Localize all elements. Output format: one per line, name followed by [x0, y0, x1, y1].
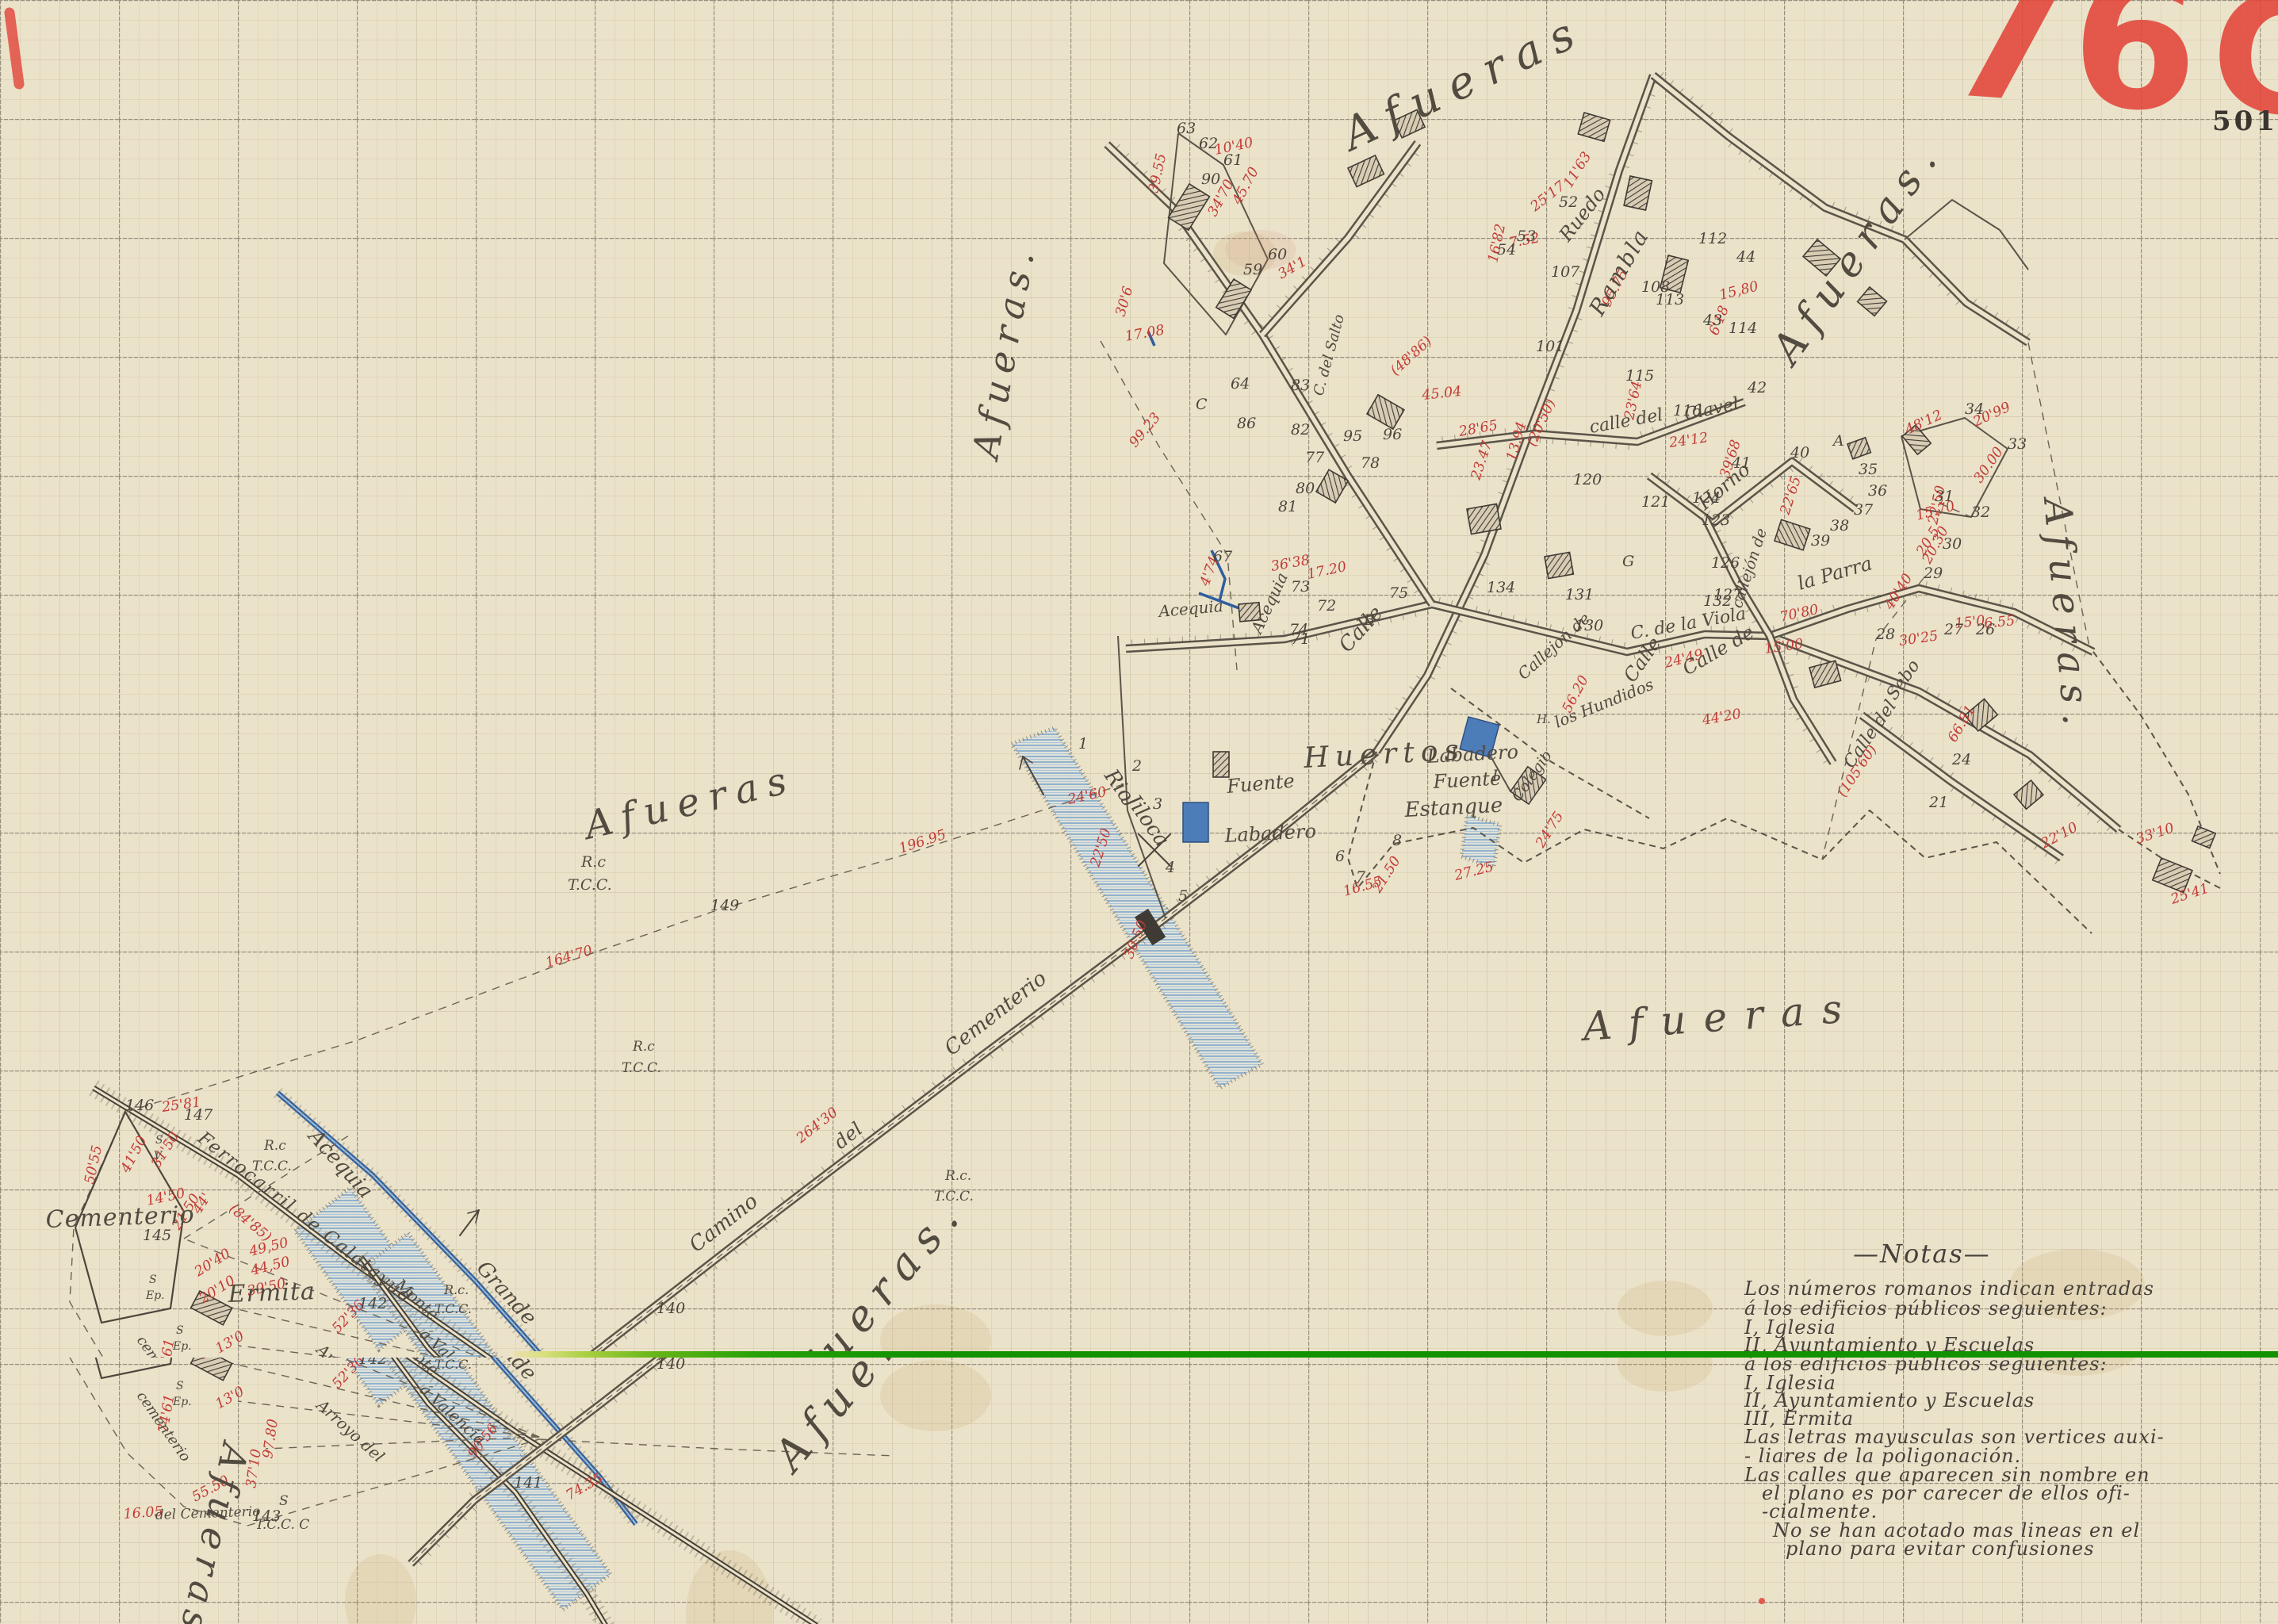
survey-point-number: 123: [1702, 511, 1730, 529]
survey-point-number: 83: [1291, 377, 1310, 394]
survey-point-number: 121: [1641, 493, 1670, 511]
map-label: R.c: [632, 1039, 655, 1055]
survey-point-number: 59: [1243, 261, 1262, 278]
map-label: Ermita: [227, 1277, 316, 1308]
survey-point-number: 113: [1656, 291, 1684, 308]
survey-point-number: 5: [1178, 887, 1188, 905]
survey-point-number: 36: [1868, 482, 1887, 500]
survey-point-number: 86: [1237, 415, 1256, 432]
survey-point-number: 67: [1213, 548, 1233, 565]
survey-point-number: 82: [1291, 421, 1310, 439]
survey-point-number: 80: [1296, 480, 1315, 497]
map-label: T.C.C.: [435, 1301, 472, 1316]
survey-point-number: 78: [1361, 454, 1380, 472]
survey-point-number: 7: [1356, 868, 1366, 886]
survey-point-number: 44: [1736, 248, 1755, 266]
map-label: R.c.: [944, 1168, 971, 1184]
survey-point-number: 40: [1790, 444, 1809, 462]
survey-point-number: 63: [1177, 120, 1196, 137]
survey-point-number: 131: [1565, 586, 1594, 603]
survey-point-number: 31: [1935, 488, 1954, 505]
notes-title: —Notas—: [1853, 1239, 1991, 1269]
survey-point-number: 107: [1551, 263, 1580, 281]
map-label: T.C.C.: [568, 876, 612, 894]
survey-point-number: 114: [1729, 320, 1757, 337]
survey-point-number: 140: [657, 1300, 685, 1317]
map-label: Ep.: [145, 1289, 165, 1302]
survey-point-number: 101: [1536, 338, 1564, 355]
survey-point-number: 74: [1289, 621, 1308, 638]
survey-point-number: 64: [1231, 375, 1250, 393]
map-label: T.C.C.: [934, 1189, 974, 1205]
survey-point-number: 95: [1343, 427, 1362, 445]
survey-point-number: 32: [1971, 504, 1990, 521]
sheet-number: 5012: [2212, 105, 2278, 137]
crayon-number: 76: [1938, 0, 2206, 155]
survey-point-number: 142: [358, 1295, 387, 1312]
survey-point-number: 1: [1078, 735, 1088, 753]
survey-point-number: 53: [1517, 228, 1536, 245]
map-label: R.c.: [443, 1282, 469, 1297]
survey-point-number: 28: [1875, 626, 1895, 643]
map-label: S: [176, 1324, 184, 1337]
survey-point-number: 81: [1278, 498, 1297, 515]
corner-annotations: 76 C 5012: [1938, 0, 2278, 155]
survey-point-number: 8: [1392, 832, 1402, 849]
survey-point-number: 21: [1928, 794, 1948, 811]
survey-point-number: 29: [1923, 565, 1943, 582]
map-label: R.c: [263, 1138, 286, 1154]
survey-point-number: G: [1622, 553, 1634, 570]
survey-point-number: 126: [1711, 554, 1740, 572]
survey-point-number: 146: [125, 1097, 154, 1114]
survey-point-number: 90: [1201, 170, 1220, 188]
survey-point-number: 60: [1268, 246, 1287, 263]
survey-point-number: 149: [710, 897, 739, 914]
survey-point-number: 115: [1625, 367, 1654, 385]
map-label: V.: [154, 1150, 163, 1162]
survey-point-number: 2: [1131, 757, 1142, 775]
survey-point-number: 34: [1965, 400, 1984, 418]
map-label: Fuente: [1432, 768, 1502, 793]
survey-point-number: 72: [1317, 597, 1336, 615]
survey-point-number: A: [1832, 432, 1844, 450]
survey-point-number: 77: [1305, 449, 1325, 466]
survey-point-number: 96: [1383, 426, 1402, 443]
survey-point-number: 75: [1389, 584, 1408, 602]
map-label: Cementerio: [45, 1201, 195, 1234]
notes-line: Los números romanos indican entradas: [1744, 1277, 2154, 1300]
map-label: R.c: [580, 853, 606, 871]
survey-point-number: 37: [1854, 501, 1874, 519]
survey-point-number: 42: [1747, 379, 1767, 396]
survey-point-number: 35: [1859, 461, 1878, 478]
survey-point-number: 134: [1487, 579, 1515, 596]
map-canvas: 25'8150'5541'5031'5014'5021'5044'20'4020…: [0, 0, 2278, 1624]
survey-point-number: 73: [1291, 578, 1310, 596]
survey-point-number: C: [1196, 396, 1208, 413]
survey-point-number: 24: [1951, 751, 1971, 768]
survey-point-number: 30: [1943, 535, 1962, 553]
survey-point-number: 38: [1830, 517, 1849, 534]
survey-point-number: 6: [1335, 848, 1345, 865]
glitch-green-line: [514, 1351, 2278, 1358]
survey-point-number: 54: [1497, 241, 1516, 259]
survey-point-number: 112: [1698, 230, 1727, 247]
survey-point-number: 26: [1975, 621, 1995, 638]
map-label: S: [155, 1134, 163, 1147]
scanned-cadastral-map-sheet: 25'8150'5541'5031'5014'5021'5044'20'4020…: [0, 0, 2278, 1624]
map-label: S: [149, 1274, 157, 1286]
survey-point-number: 33: [2008, 435, 2027, 453]
survey-point-number: 27: [1943, 621, 1964, 638]
map-label: T.C.C.: [622, 1060, 661, 1076]
survey-point-number: 43: [1702, 312, 1722, 329]
survey-point-number: 4: [1165, 859, 1175, 876]
survey-point-number: 147: [184, 1106, 213, 1124]
survey-point-number: 39: [1811, 532, 1830, 550]
map-label: Ep.: [172, 1340, 192, 1353]
survey-point-number: 62: [1199, 135, 1218, 152]
survey-point-number: 120: [1573, 471, 1602, 488]
survey-point-number: 61: [1223, 151, 1242, 169]
map-label: T.C.C.: [252, 1159, 292, 1174]
map-label: H.: [1536, 712, 1551, 726]
